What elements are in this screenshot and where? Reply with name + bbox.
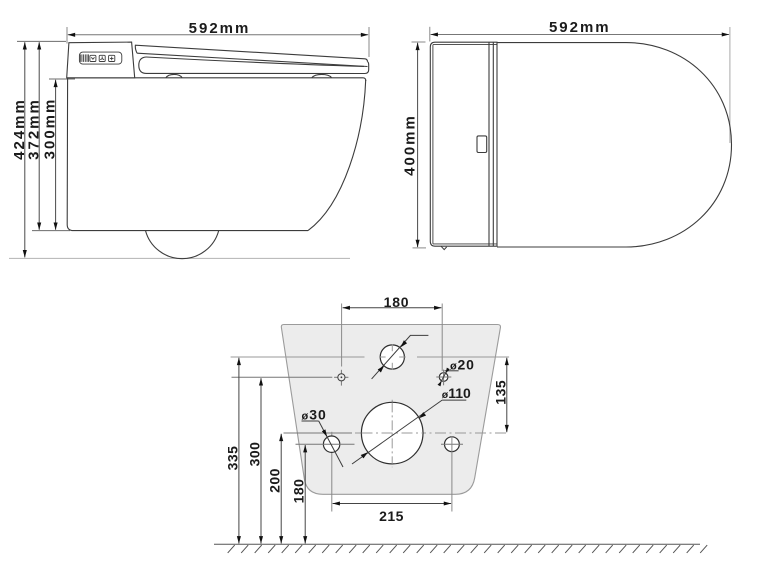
svg-text:400mm: 400mm [402,114,419,176]
svg-text:180: 180 [384,294,410,310]
svg-text:215: 215 [379,508,404,524]
svg-text:592mm: 592mm [189,20,251,37]
svg-text:300mm: 300mm [42,98,59,160]
svg-text:335: 335 [224,446,240,471]
svg-text:592mm: 592mm [549,19,611,36]
svg-text:135: 135 [492,380,508,405]
svg-text:372mm: 372mm [25,98,42,160]
svg-text:180: 180 [291,479,307,504]
svg-text:200: 200 [267,468,283,493]
svg-text:300: 300 [247,442,263,467]
